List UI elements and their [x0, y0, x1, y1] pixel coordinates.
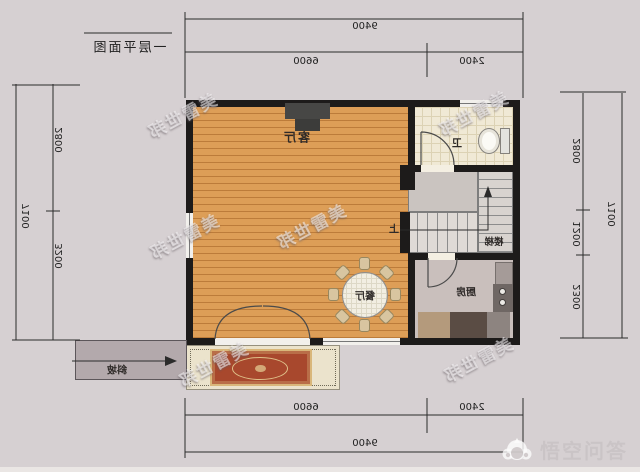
dim-left-2800: 2800	[55, 127, 65, 152]
label-living-room: 客厅	[282, 129, 310, 146]
label-ramp: 斜坡	[107, 362, 127, 377]
dimension-lines-svg	[0, 0, 640, 472]
dim-top-total: 9400	[352, 22, 377, 32]
dim-bottom-2400: 2400	[459, 403, 484, 413]
dim-top-2400: 2400	[459, 57, 484, 67]
floor-plan-image: 一层平面图 客厅 餐厅 厨房 楼梯 卫 上 斜坡 9400 6600 2400 …	[0, 0, 640, 472]
dim-right-2800: 2800	[573, 138, 583, 163]
label-dining-room: 餐厅	[355, 288, 375, 303]
dim-left-total: 7100	[22, 203, 32, 228]
label-stair-up: 上	[389, 221, 399, 236]
dim-top-6600: 6600	[293, 57, 318, 67]
label-kitchen: 厨房	[456, 284, 476, 299]
logo-text: 悟空问答	[540, 435, 628, 464]
dim-right-total: 7100	[608, 201, 618, 226]
bottom-edge-strip	[0, 467, 640, 472]
label-stairs: 楼梯	[484, 234, 503, 248]
dim-left-3200: 3200	[55, 243, 65, 268]
mirrored-plan-layer: 一层平面图 客厅 餐厅 厨房 楼梯 卫 上 斜坡 9400 6600 2400 …	[0, 0, 640, 472]
dim-bottom-total: 9400	[352, 439, 377, 449]
dim-bottom-6600: 6600	[293, 403, 318, 413]
plan-title: 一层平面图	[91, 37, 166, 56]
wukong-qa-logo: 悟空问答	[501, 434, 628, 464]
dim-right-1200: 1200	[573, 221, 583, 246]
dim-right-2300: 2300	[573, 284, 583, 309]
monkey-icon	[501, 434, 533, 464]
